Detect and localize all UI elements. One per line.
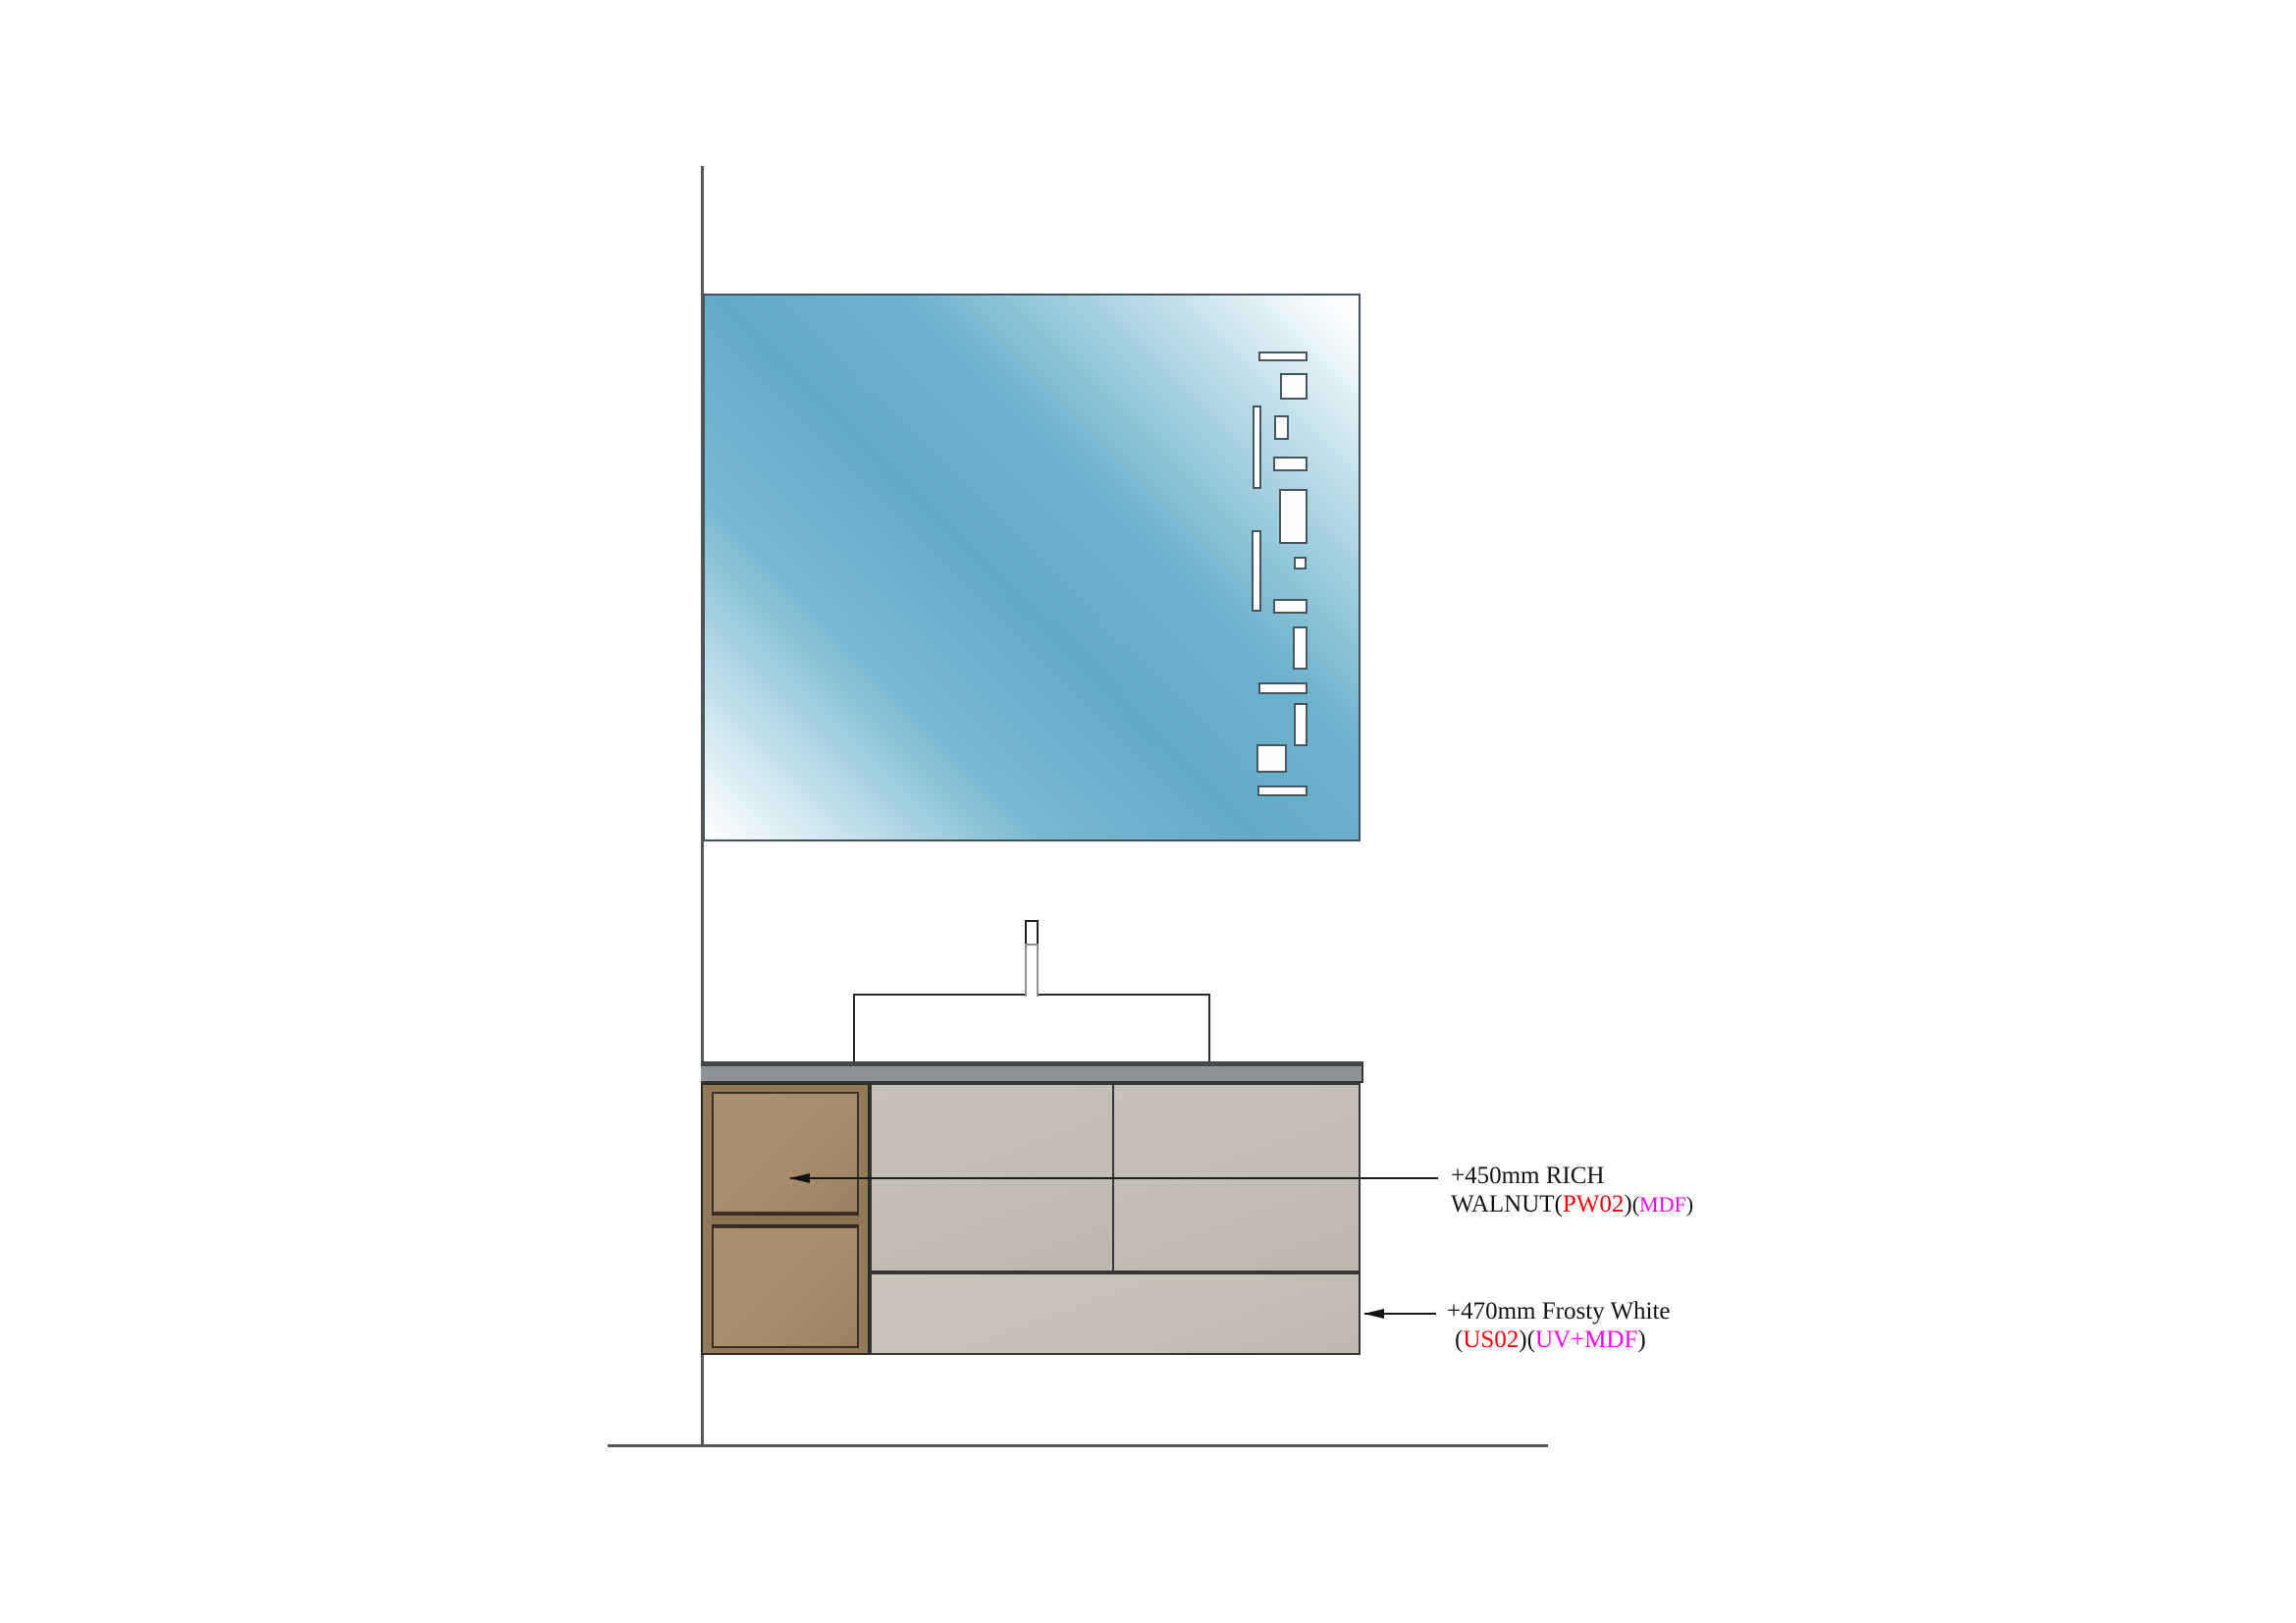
mirror-cutout-rect bbox=[1258, 682, 1308, 694]
mirror-cutout-rect bbox=[1257, 785, 1308, 796]
mirror-cutout-rect bbox=[1293, 626, 1308, 670]
left-arrowhead-icon bbox=[789, 1173, 810, 1183]
mirror bbox=[703, 294, 1361, 841]
annotation-line: (US02)(UV+MDF) bbox=[1447, 1325, 1671, 1354]
vanity-cabinet bbox=[701, 1083, 1361, 1355]
vessel-sink bbox=[853, 994, 1210, 1063]
left-arrowhead-icon bbox=[1363, 1309, 1384, 1319]
faucet-spout bbox=[1025, 920, 1039, 946]
annotation-line: WALNUT(PW02)(MDF) bbox=[1451, 1190, 1693, 1218]
faucet-riser bbox=[1025, 944, 1039, 997]
mirror-cutout-rect bbox=[1280, 373, 1308, 400]
annotation-rich-walnut: +450mm RICHWALNUT(PW02)(MDF) bbox=[1451, 1162, 1693, 1218]
elevation-drawing: +450mm RICHWALNUT(PW02)(MDF) +470mm Fros… bbox=[0, 0, 2296, 1623]
mirror-cutout-rect bbox=[1279, 489, 1308, 544]
mirror-cutout-rect bbox=[1258, 352, 1308, 361]
cabinet-bottom-drawer bbox=[870, 1272, 1361, 1355]
leader-line-frosty-white bbox=[1364, 1313, 1436, 1315]
mirror-cutout-rect bbox=[1294, 703, 1308, 746]
countertop bbox=[701, 1061, 1363, 1083]
mirror-cutout-rect bbox=[1273, 457, 1308, 471]
annotation-line: +470mm Frosty White bbox=[1447, 1297, 1671, 1325]
mirror-cutout-rect bbox=[1273, 599, 1308, 614]
mirror-cutout-rect bbox=[1253, 406, 1261, 489]
mirror-cutout-rect bbox=[1274, 415, 1289, 440]
leader-line-walnut bbox=[790, 1177, 1438, 1179]
wood-drawer-divider bbox=[712, 1214, 859, 1226]
wood-drawer-stack bbox=[701, 1083, 870, 1355]
wood-drawer-lower bbox=[712, 1226, 859, 1348]
floor-line bbox=[608, 1444, 1548, 1447]
wood-drawer-upper bbox=[712, 1092, 859, 1214]
mirror-cutout-rect bbox=[1294, 557, 1307, 569]
mirror-cutout-rect bbox=[1252, 530, 1261, 612]
annotation-line: +450mm RICH bbox=[1451, 1162, 1693, 1190]
mirror-cutout-rect bbox=[1256, 744, 1287, 773]
annotation-frosty-white: +470mm Frosty White(US02)(UV+MDF) bbox=[1447, 1297, 1671, 1354]
